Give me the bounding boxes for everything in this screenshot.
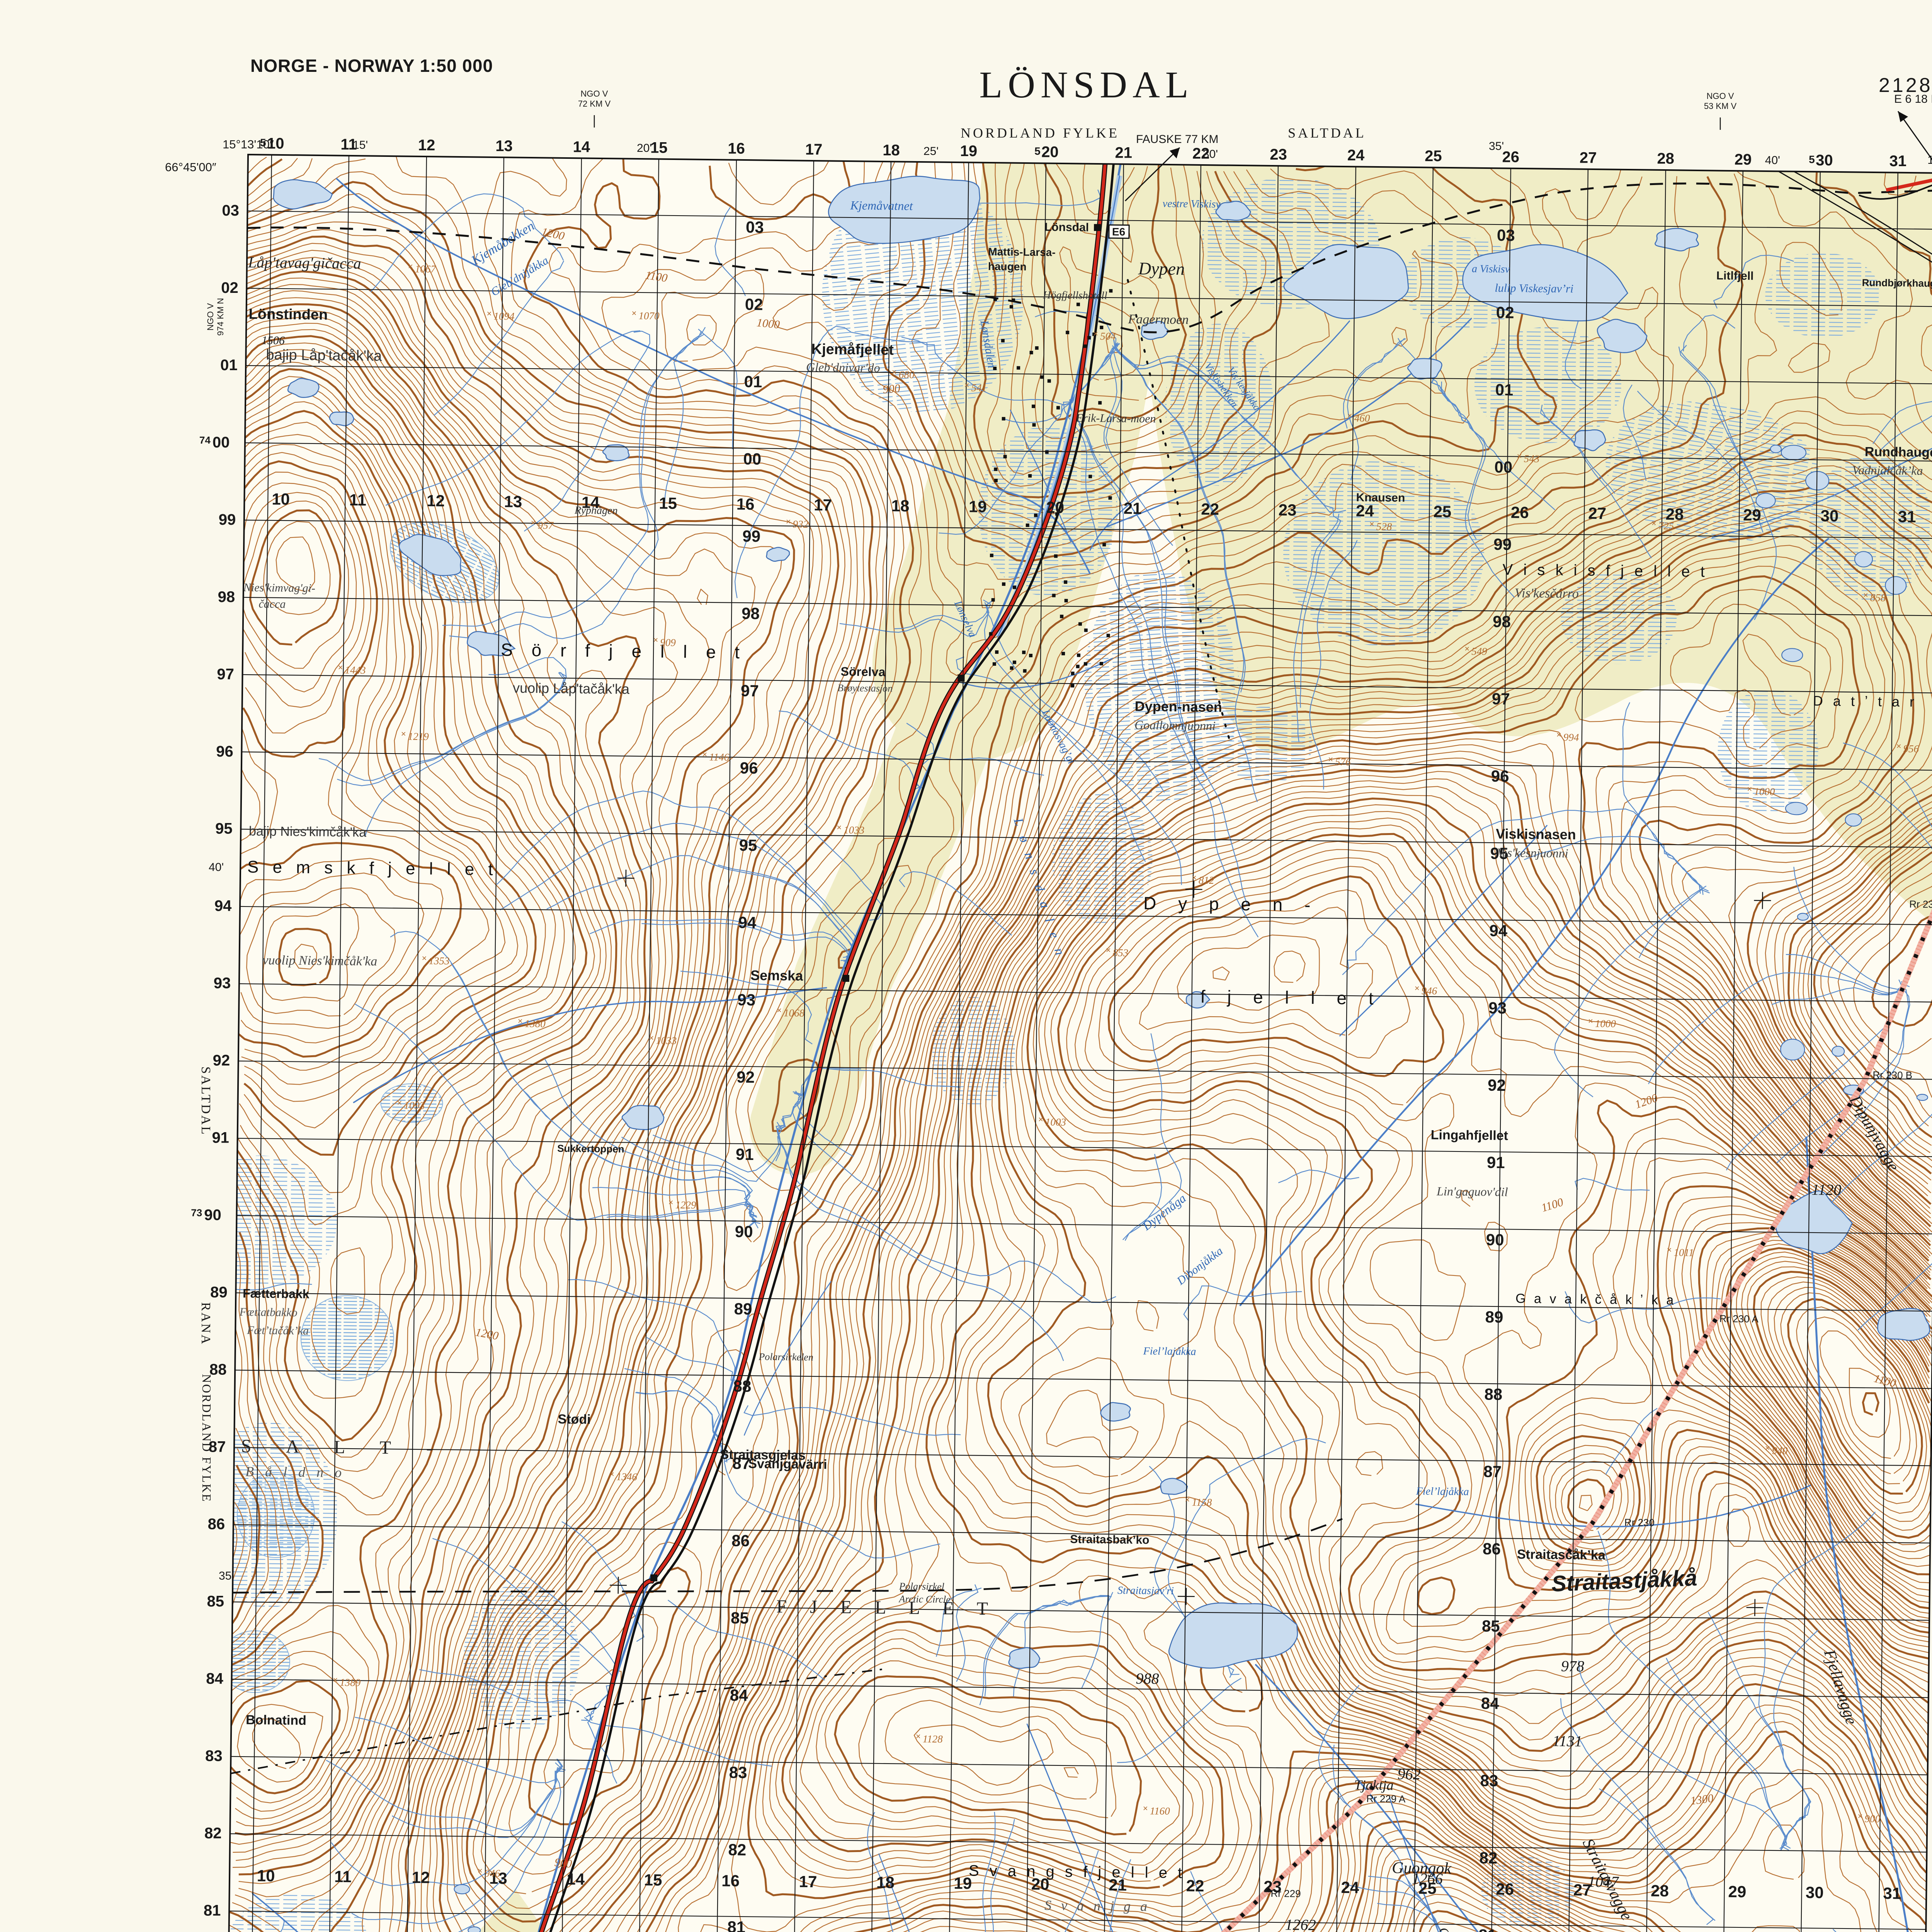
svg-text:94: 94 <box>214 898 232 915</box>
svg-text:E6: E6 <box>1112 226 1126 238</box>
svg-text:×: × <box>408 261 413 271</box>
svg-text:91: 91 <box>1487 1153 1505 1172</box>
svg-text:×: × <box>518 1016 523 1026</box>
svg-text:29: 29 <box>1743 506 1761 524</box>
svg-text:94: 94 <box>738 913 757 932</box>
svg-text:13: 13 <box>504 492 522 511</box>
svg-text:G a v a k č å k ʼ k a: G a v a k č å k ʼ k a <box>1515 1291 1676 1308</box>
svg-text:×: × <box>916 1731 921 1741</box>
svg-text:Rr 231: Rr 231 <box>1909 898 1932 910</box>
svg-text:×: × <box>777 1005 782 1015</box>
svg-text:Rr 230: Rr 230 <box>1624 1517 1655 1529</box>
svg-text:99: 99 <box>219 511 236 528</box>
svg-text:93: 93 <box>737 991 755 1009</box>
svg-text:×: × <box>1765 1443 1770 1453</box>
svg-text:×: × <box>531 518 536 527</box>
svg-text:Rr 229 A: Rr 229 A <box>1366 1793 1406 1805</box>
svg-text:00: 00 <box>743 450 761 468</box>
svg-text:1158: 1158 <box>1192 1497 1212 1509</box>
svg-text:×: × <box>1863 590 1868 600</box>
svg-text:S ö r f j e l l e t: S ö r f j e l l e t <box>501 639 747 662</box>
svg-text:Dypen: Dypen <box>1138 259 1185 279</box>
svg-text:LÖNSDAL: LÖNSDAL <box>979 64 1194 106</box>
svg-text:S A L T -: S A L T - <box>241 1436 448 1459</box>
svg-text:02: 02 <box>1496 303 1514 322</box>
svg-text:96: 96 <box>216 743 233 760</box>
svg-text:90: 90 <box>204 1207 221 1224</box>
svg-text:×: × <box>1328 754 1333 764</box>
svg-text:×: × <box>1517 451 1522 461</box>
svg-text:1262: 1262 <box>1285 1916 1316 1932</box>
svg-text:26: 26 <box>1511 503 1529 522</box>
svg-text:×: × <box>964 380 969 390</box>
svg-text:962: 962 <box>1398 1765 1421 1783</box>
svg-text:Erik-Larsa-moen: Erik-Larsa-moen <box>1076 412 1156 425</box>
svg-text:974 KM N: 974 KM N <box>216 298 225 336</box>
svg-text:čacca: čacca <box>259 597 286 611</box>
svg-text:×: × <box>1192 873 1197 883</box>
svg-text:Sukkertoppen: Sukkertoppen <box>557 1143 624 1155</box>
svg-text:35': 35' <box>219 1570 234 1582</box>
svg-text:84: 84 <box>1481 1694 1500 1713</box>
svg-text:93: 93 <box>1488 999 1507 1017</box>
svg-text:×: × <box>1747 784 1752 794</box>
svg-text:×: × <box>649 1033 654 1043</box>
svg-text:89: 89 <box>1485 1308 1503 1327</box>
svg-text:Lingahfjellet: Lingahfjellet <box>1431 1128 1509 1143</box>
svg-text:680: 680 <box>899 369 915 380</box>
svg-text:12: 12 <box>412 1868 430 1887</box>
svg-text:19: 19 <box>960 143 978 160</box>
svg-text:×: × <box>631 308 636 318</box>
svg-text:900: 900 <box>1864 1813 1880 1825</box>
svg-text:73: 73 <box>191 1207 202 1219</box>
svg-text:12: 12 <box>427 492 445 510</box>
svg-text:98: 98 <box>1493 612 1511 631</box>
svg-text:24: 24 <box>1341 1878 1359 1897</box>
svg-text:NORDLAND FYLKE: NORDLAND FYLKE <box>961 125 1119 141</box>
svg-text:16: 16 <box>728 140 745 157</box>
svg-text:RANA: RANA <box>199 1302 213 1345</box>
svg-text:×: × <box>397 1098 402 1107</box>
svg-text:83: 83 <box>1480 1771 1498 1790</box>
svg-text:×: × <box>1667 1245 1672 1255</box>
svg-text:1380: 1380 <box>525 1018 546 1030</box>
svg-text:Straitasčåkʼka: Straitasčåkʼka <box>1517 1547 1606 1563</box>
svg-text:1219: 1219 <box>408 731 429 743</box>
svg-text:×: × <box>892 367 897 377</box>
svg-text:88: 88 <box>1484 1385 1502 1404</box>
svg-text:Knausen: Knausen <box>1356 491 1405 504</box>
svg-text:01: 01 <box>744 372 762 391</box>
svg-text:lulip Viskesjavʼri: lulip Viskesjavʼri <box>1495 282 1573 295</box>
svg-text:NGO V: NGO V <box>206 303 215 330</box>
svg-text:94: 94 <box>1489 922 1508 940</box>
svg-text:Fagermoen: Fagermoen <box>1128 312 1189 327</box>
svg-text:Goallomnjuonni: Goallomnjuonni <box>1134 718 1216 733</box>
svg-text:460: 460 <box>1354 412 1370 424</box>
svg-text:03: 03 <box>222 202 239 219</box>
svg-text:haugen: haugen <box>988 260 1027 273</box>
svg-text:Vis'kesčárro: Vis'kesčárro <box>1515 586 1579 601</box>
svg-text:30: 30 <box>1820 507 1838 525</box>
svg-text:00: 00 <box>213 434 230 451</box>
svg-text:20': 20' <box>637 142 652 155</box>
svg-text:×: × <box>1464 644 1469 653</box>
svg-text:97: 97 <box>1492 690 1510 708</box>
svg-text:×: × <box>478 1866 483 1876</box>
svg-text:1033: 1033 <box>844 824 864 836</box>
svg-text:SALTDAL: SALTDAL <box>1288 125 1366 141</box>
svg-text:13: 13 <box>495 138 513 155</box>
svg-text:×: × <box>702 750 707 759</box>
svg-text:14: 14 <box>573 138 590 155</box>
svg-text:bajip Låp'tačåk'ka: bajip Låp'tačåk'ka <box>266 347 382 364</box>
svg-text:30: 30 <box>1806 1883 1824 1902</box>
svg-text:Bolnatind: Bolnatind <box>246 1713 306 1728</box>
svg-text:543: 543 <box>1524 453 1540 464</box>
svg-text:×: × <box>422 953 427 963</box>
svg-text:22: 22 <box>1201 500 1219 519</box>
svg-text:504: 504 <box>1100 330 1116 342</box>
svg-text:988: 988 <box>1136 1670 1159 1687</box>
svg-text:20: 20 <box>1046 498 1064 517</box>
svg-text:26: 26 <box>1496 1880 1514 1898</box>
svg-text:01: 01 <box>220 357 238 374</box>
svg-text:×: × <box>1347 411 1352 420</box>
svg-text:27: 27 <box>1580 150 1597 167</box>
svg-text:1443: 1443 <box>345 664 366 676</box>
svg-text:18: 18 <box>876 1873 895 1892</box>
svg-text:30: 30 <box>1816 152 1833 169</box>
svg-text:Fielʼlajåkka: Fielʼlajåkka <box>1416 1485 1469 1498</box>
svg-text:Lönsdal: Lönsdal <box>1044 221 1089 234</box>
svg-text:×: × <box>1185 1495 1190 1504</box>
svg-text:92: 92 <box>213 1052 230 1069</box>
svg-text:81: 81 <box>727 1918 745 1932</box>
svg-text:96: 96 <box>1491 767 1509 786</box>
svg-text:15°43'10″: 15°43'10″ <box>1927 153 1932 167</box>
svg-text:×: × <box>1106 945 1111 955</box>
svg-text:92: 92 <box>1488 1076 1506 1095</box>
svg-text:1067: 1067 <box>415 263 437 275</box>
svg-text:1033: 1033 <box>656 1035 677 1047</box>
svg-text:S v a n j g a: S v a n j g a <box>1044 1898 1150 1914</box>
svg-text:bajip Nies'kimčåk'ka: bajip Nies'kimčåk'ka <box>249 824 366 840</box>
svg-text:21: 21 <box>1124 499 1142 518</box>
svg-text:15: 15 <box>659 494 677 513</box>
svg-text:940: 940 <box>1772 1445 1788 1456</box>
svg-text:Kjemåfjellet: Kjemåfjellet <box>811 341 894 358</box>
svg-text:NGO V: NGO V <box>1707 91 1734 101</box>
svg-text:03: 03 <box>1497 226 1515 245</box>
svg-text:20: 20 <box>1041 143 1059 160</box>
svg-text:×: × <box>1588 1016 1593 1026</box>
svg-text:00: 00 <box>1494 458 1512 476</box>
svg-text:19: 19 <box>969 497 987 516</box>
svg-text:25: 25 <box>1433 502 1451 521</box>
svg-text:1266: 1266 <box>1412 1870 1443 1888</box>
svg-text:Fættatbakko: Fættatbakko <box>239 1306 297 1319</box>
svg-text:98: 98 <box>218 588 235 605</box>
svg-text:1160: 1160 <box>1150 1805 1170 1817</box>
svg-text:Rr 230 A: Rr 230 A <box>1719 1313 1759 1325</box>
svg-text:96: 96 <box>740 759 758 777</box>
svg-text:10: 10 <box>257 1867 275 1885</box>
svg-text:40': 40' <box>209 861 224 874</box>
svg-text:Svanjgavärri: Svanjgavärri <box>748 1456 827 1472</box>
svg-text:31: 31 <box>1889 153 1907 170</box>
svg-text:×: × <box>401 729 406 738</box>
svg-text:900: 900 <box>554 1856 573 1871</box>
svg-text:66°45'00″: 66°45'00″ <box>165 160 216 174</box>
svg-text:17: 17 <box>814 496 832 514</box>
svg-text:×: × <box>486 309 492 318</box>
svg-text:×: × <box>609 1469 614 1479</box>
svg-text:×: × <box>1143 1803 1148 1813</box>
svg-text:23: 23 <box>1270 146 1287 163</box>
svg-text:Fielʼlajåkka: Fielʼlajåkka <box>1143 1345 1196 1357</box>
svg-text:1346: 1346 <box>616 1471 638 1483</box>
svg-text:72 KM V: 72 KM V <box>578 99 611 109</box>
svg-text:1120: 1120 <box>1811 1181 1842 1199</box>
svg-text:vestre Viskisv: vestre Viskisv <box>1163 198 1221 211</box>
svg-text:82: 82 <box>728 1840 746 1859</box>
svg-text:35': 35' <box>1489 140 1504 153</box>
svg-text:×: × <box>1369 519 1374 529</box>
svg-text:28: 28 <box>1657 150 1674 167</box>
svg-text:82: 82 <box>1479 1849 1497 1867</box>
svg-text:vuolip Låp'tačåk'ka: vuolip Låp'tačåk'ka <box>513 680 630 697</box>
svg-text:24: 24 <box>1356 502 1374 520</box>
svg-text:946: 946 <box>1422 985 1437 997</box>
svg-text:932: 932 <box>793 518 809 530</box>
svg-text:FAUSKE 77 KM: FAUSKE 77 KM <box>1136 133 1218 146</box>
svg-text:956: 956 <box>1903 743 1919 754</box>
svg-text:1000: 1000 <box>756 316 781 331</box>
svg-text:1003: 1003 <box>1045 1116 1066 1128</box>
svg-text:87: 87 <box>1483 1462 1502 1481</box>
svg-text:1068: 1068 <box>784 1007 805 1019</box>
svg-text:81: 81 <box>204 1902 221 1919</box>
svg-text:95: 95 <box>739 836 757 855</box>
svg-text:1094: 1094 <box>493 310 514 322</box>
svg-text:D a t ʼ t a r: D a t ʼ t a r <box>1813 693 1917 710</box>
svg-text:×: × <box>333 1675 338 1685</box>
svg-text:86: 86 <box>208 1515 225 1532</box>
svg-text:16: 16 <box>736 495 755 514</box>
svg-text:Lönstinden: Lönstinden <box>248 306 328 323</box>
svg-text:F J E L L E T: F J E L L E T <box>776 1596 997 1619</box>
svg-text:26: 26 <box>1502 148 1520 165</box>
svg-text:853: 853 <box>1113 947 1129 958</box>
svg-text:Semska: Semska <box>750 967 804 983</box>
svg-text:86: 86 <box>731 1531 750 1550</box>
svg-text:53 KM V: 53 KM V <box>1704 101 1737 111</box>
svg-text:Sörelva: Sörelva <box>840 665 885 679</box>
svg-text:1000: 1000 <box>1595 1018 1616 1030</box>
svg-text:95: 95 <box>215 820 233 837</box>
svg-text:994: 994 <box>1563 731 1579 743</box>
svg-text:Polarsirkel: Polarsirkel <box>899 1580 944 1592</box>
svg-text:×: × <box>668 1197 673 1207</box>
svg-text:×: × <box>1896 741 1901 751</box>
svg-text:f j e l l e t: f j e l l e t <box>1200 986 1382 1009</box>
svg-text:12: 12 <box>418 137 435 154</box>
svg-text:Låp'tavag'gičacca: Låp'tavag'gičacca <box>248 253 361 272</box>
svg-text:1000: 1000 <box>1754 786 1775 798</box>
svg-text:97: 97 <box>217 666 234 683</box>
svg-text:528: 528 <box>1376 521 1392 532</box>
svg-text:NORDLAND FYLKE: NORDLAND FYLKE <box>200 1374 214 1503</box>
svg-text:40': 40' <box>1765 154 1780 167</box>
svg-text:83: 83 <box>205 1747 223 1764</box>
svg-text:02: 02 <box>745 295 763 314</box>
svg-text:93: 93 <box>214 975 231 992</box>
svg-text:Rr 229: Rr 229 <box>1270 1888 1301 1900</box>
svg-text:31: 31 <box>1898 507 1916 526</box>
svg-text:946: 946 <box>485 1867 500 1879</box>
svg-text:99: 99 <box>742 527 760 546</box>
svg-text:74: 74 <box>199 434 211 446</box>
svg-text:S v a n g s f j e l l e t: S v a n g s f j e l l e t <box>969 1862 1185 1881</box>
svg-text:27: 27 <box>1588 504 1606 523</box>
svg-text:Litlfjell: Litlfjell <box>1716 269 1754 282</box>
svg-text:×: × <box>1093 329 1098 338</box>
svg-text:Högfjellshotell: Högfjellshotell <box>1043 289 1107 302</box>
svg-text:909: 909 <box>660 637 676 648</box>
svg-text:×: × <box>1556 730 1561 740</box>
svg-text:99: 99 <box>1493 535 1512 554</box>
svg-text:92: 92 <box>736 1068 755 1087</box>
svg-text:15: 15 <box>644 1871 662 1889</box>
svg-text:Straitasbakʼko: Straitasbakʼko <box>1070 1533 1149 1546</box>
svg-text:×: × <box>338 663 343 672</box>
svg-text:91: 91 <box>212 1129 229 1146</box>
svg-text:NGO V: NGO V <box>581 89 608 99</box>
svg-text:×: × <box>837 823 842 832</box>
svg-text:18: 18 <box>891 497 909 515</box>
svg-text:81: 81 <box>1478 1926 1497 1932</box>
svg-text:85: 85 <box>207 1593 224 1610</box>
svg-text:29: 29 <box>1728 1883 1746 1901</box>
svg-text:1229: 1229 <box>675 1199 696 1211</box>
svg-text:25': 25' <box>923 145 939 158</box>
svg-text:Vis'kesnjuonni: Vis'kesnjuonni <box>1497 845 1568 860</box>
svg-text:18: 18 <box>883 142 900 159</box>
svg-text:1070: 1070 <box>638 310 660 322</box>
svg-text:vuolip Nies'kimčåk'ka: vuolip Nies'kimčåk'ka <box>262 953 377 969</box>
svg-text:E 6 18 KM: E 6 18 KM <box>1894 93 1932 105</box>
svg-text:5: 5 <box>1034 145 1041 157</box>
svg-text:Viskisnasen: Viskisnasen <box>1496 826 1576 842</box>
svg-text:Straitasjav'ri: Straitasjav'ri <box>1117 1585 1174 1597</box>
svg-text:Brøytestasjon: Brøytestasjon <box>837 682 893 694</box>
svg-text:×: × <box>786 517 791 526</box>
svg-text:5: 5 <box>1809 153 1815 165</box>
svg-text:85: 85 <box>1482 1617 1500 1635</box>
svg-text:×: × <box>1415 983 1420 993</box>
svg-text:28: 28 <box>1651 1882 1669 1900</box>
svg-text:1047: 1047 <box>1588 1873 1619 1891</box>
svg-text:×: × <box>653 635 658 645</box>
svg-text:900: 900 <box>882 382 900 396</box>
svg-text:Rundhaugen: Rundhaugen <box>1865 444 1932 460</box>
svg-text:Lin'gaguov'dil: Lin'gaguov'dil <box>1436 1184 1508 1199</box>
svg-text:85: 85 <box>731 1609 749 1627</box>
svg-text:10: 10 <box>272 490 290 509</box>
svg-text:89: 89 <box>210 1284 228 1301</box>
svg-text:29: 29 <box>1735 151 1752 168</box>
svg-text:1011: 1011 <box>1673 1247 1694 1259</box>
svg-text:725: 725 <box>1658 520 1674 532</box>
svg-text:25: 25 <box>1425 148 1442 165</box>
svg-text:86: 86 <box>1483 1539 1501 1558</box>
svg-text:23: 23 <box>1278 501 1296 519</box>
svg-text:576: 576 <box>1335 756 1351 768</box>
svg-text:Mattis-Larsa-: Mattis-Larsa- <box>988 246 1056 259</box>
svg-text:1131: 1131 <box>1553 1732 1583 1750</box>
svg-text:Fætterbakk: Fætterbakk <box>243 1286 310 1301</box>
svg-text:Gleb'dnivar'do: Gleb'dnivar'do <box>806 360 880 375</box>
svg-text:B å l d n o: B å l d n o <box>245 1464 345 1480</box>
svg-text:88: 88 <box>733 1377 751 1395</box>
svg-text:01: 01 <box>1495 381 1513 399</box>
svg-text:×: × <box>1858 1811 1863 1821</box>
svg-text:30': 30' <box>1203 148 1218 161</box>
svg-text:17: 17 <box>799 1872 817 1891</box>
svg-text:91: 91 <box>736 1145 754 1164</box>
svg-text:11: 11 <box>349 491 367 509</box>
svg-text:858: 858 <box>1870 592 1886 603</box>
svg-text:1506: 1506 <box>262 334 285 347</box>
svg-text:15': 15' <box>353 139 368 151</box>
svg-text:82: 82 <box>204 1825 222 1842</box>
svg-text:Vadnjalčåkʼka: Vadnjalčåkʼka <box>1852 463 1923 478</box>
svg-text:NORGE - NORWAY 1:50 000: NORGE - NORWAY 1:50 000 <box>250 56 493 76</box>
svg-text:15: 15 <box>650 139 668 156</box>
svg-text:a Viskisv: a Viskisv <box>1472 263 1510 275</box>
svg-text:1353: 1353 <box>429 955 449 967</box>
svg-text:Rr 230 B: Rr 230 B <box>1872 1069 1912 1081</box>
svg-text:14: 14 <box>566 1870 585 1888</box>
svg-text:S e m s k f j e l l e t: S e m s k f j e l l e t <box>247 857 498 879</box>
svg-text:31: 31 <box>1883 1884 1901 1903</box>
svg-text:978: 978 <box>1561 1657 1584 1675</box>
svg-text:1146: 1146 <box>709 751 730 763</box>
svg-text:11: 11 <box>334 1867 352 1886</box>
svg-text:17: 17 <box>805 141 823 158</box>
svg-text:90: 90 <box>1486 1231 1504 1249</box>
svg-text:16: 16 <box>721 1872 740 1890</box>
svg-text:02: 02 <box>221 279 238 296</box>
svg-text:21: 21 <box>1115 145 1132 162</box>
svg-text:Nies'kimvag'gi-: Nies'kimvag'gi- <box>243 581 315 595</box>
svg-text:Stødi: Stødi <box>558 1412 590 1427</box>
svg-text:1128: 1128 <box>923 1733 943 1745</box>
svg-text:Fætʼtačåkʼka: Fætʼtačåkʼka <box>247 1324 309 1337</box>
svg-text:957: 957 <box>538 519 554 531</box>
svg-text:×: × <box>1038 1114 1043 1124</box>
svg-text:24: 24 <box>1347 147 1365 164</box>
svg-text:549: 549 <box>1471 645 1487 657</box>
svg-text:SALTDAL: SALTDAL <box>199 1066 213 1136</box>
svg-text:Polarsirkelen: Polarsirkelen <box>758 1351 813 1363</box>
svg-text:1389: 1389 <box>340 1677 361 1689</box>
svg-text:1093: 1093 <box>404 1100 425 1112</box>
svg-text:Rundbjørkhaugen: Rundbjørkhaugen <box>1862 277 1932 289</box>
svg-text:Tjaktja: Tjaktja <box>1354 1777 1393 1793</box>
